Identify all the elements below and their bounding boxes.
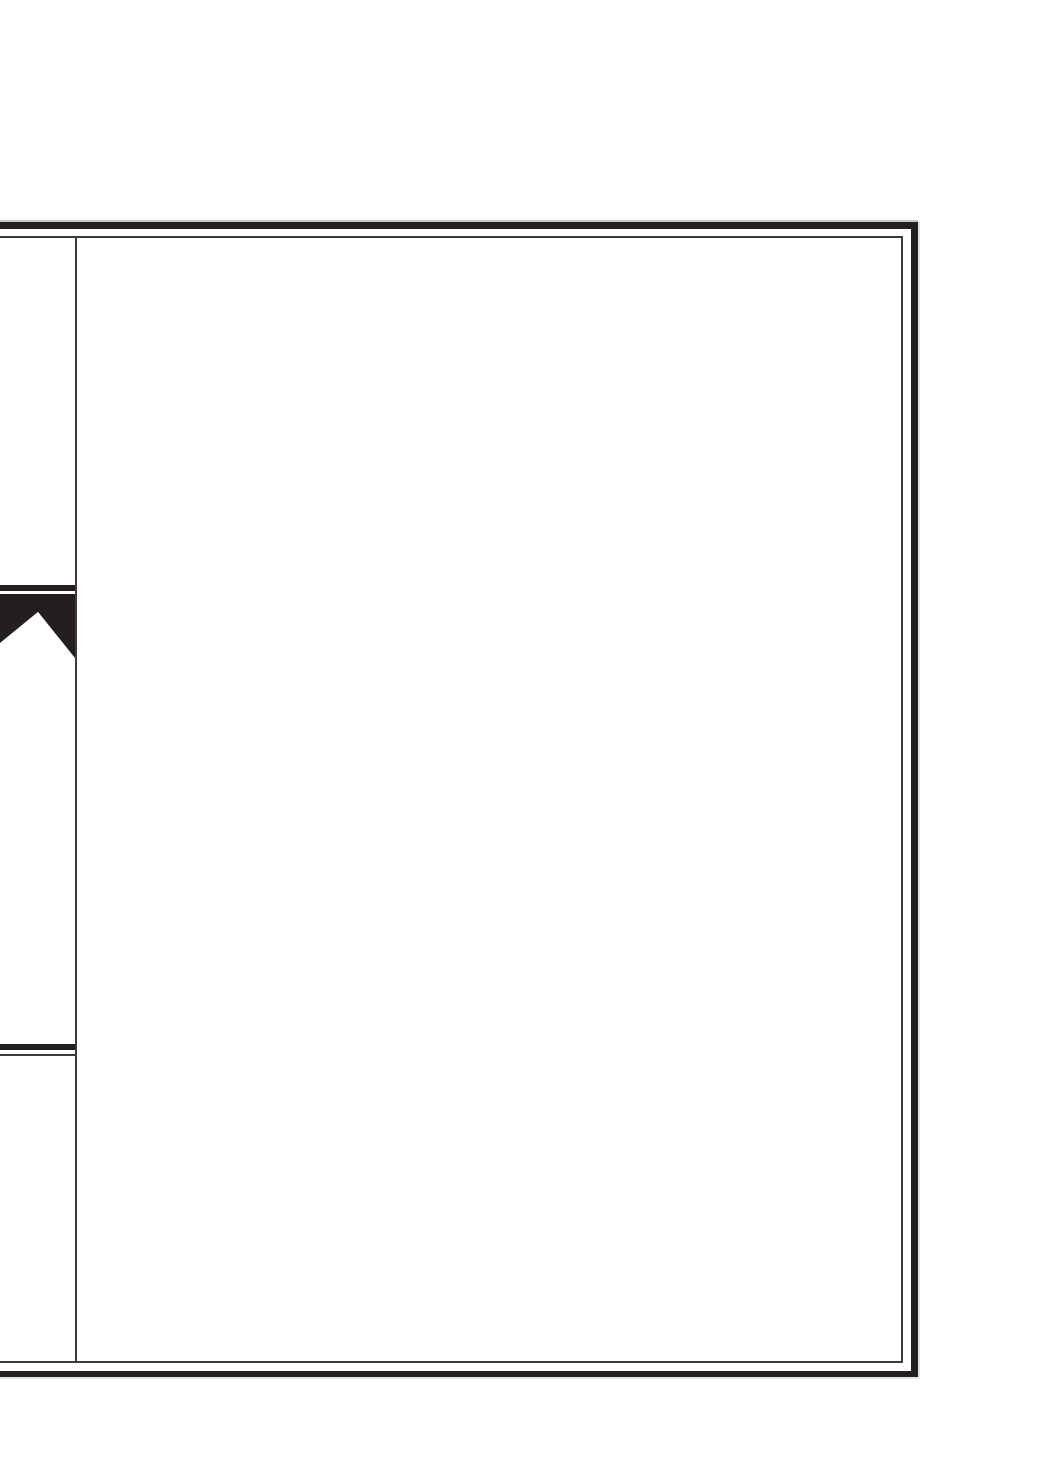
left-strip-divider-lower-thin-line (0, 1054, 75, 1056)
left-strip-gutter-line (75, 237, 77, 1362)
panel-border-right (911, 222, 918, 1377)
panel-border-top (0, 222, 918, 229)
left-strip-divider-upper (0, 585, 75, 591)
panel-border-bottom (0, 1371, 918, 1377)
panel-inner-frame (0, 236, 903, 1363)
scanned-page (0, 0, 1040, 1471)
left-strip-divider-lower (0, 1044, 75, 1050)
